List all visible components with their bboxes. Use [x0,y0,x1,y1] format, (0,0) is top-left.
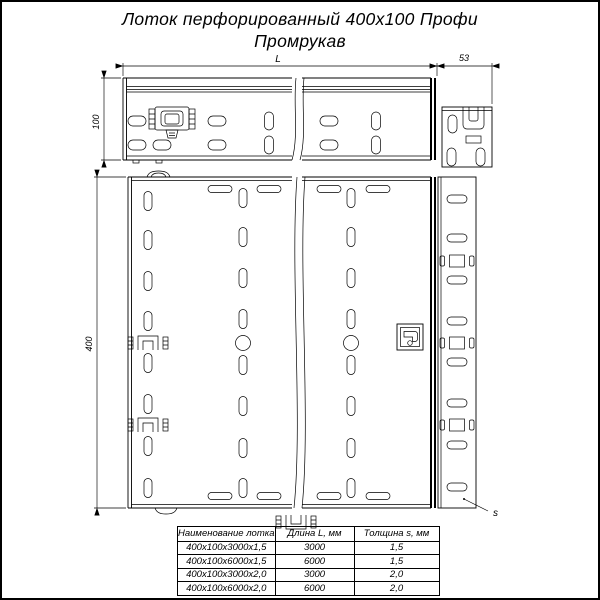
latch-detail [149,107,195,138]
spec-cell-length: 3000 [275,541,354,555]
spec-table-row: 400x100x6000x1,5 6000 1,5 [178,555,440,569]
dimension-L: L [123,54,437,76]
spec-cell-thickness: 1,5 [354,555,439,569]
connector-strip-plan [438,177,476,508]
spec-cell-thickness: 1,5 [354,541,439,555]
spec-table: Наименование лотка Длина L, мм Толщина s… [177,526,440,596]
spec-cell-name: 400x100x6000x1,5 [178,555,276,569]
top-tab [147,171,170,177]
spec-cell-name: 400x100x3000x1,5 [178,541,276,555]
dimension-100: 100 [91,78,121,160]
dimension-400: 400 [84,177,126,508]
spec-cell-length: 3000 [275,568,354,582]
spec-table-row: 400x100x6000x2,0 6000 2,0 [178,582,440,596]
spec-header-name: Наименование лотка [178,527,276,542]
technical-drawing: L 53 100 400 s [0,0,600,600]
spec-table-header-row: Наименование лотка Длина L, мм Толщина s… [178,527,440,542]
break-lines-side [292,78,304,160]
dim-label-s: s [493,508,498,519]
spec-header-length: Длина L, мм [275,527,354,542]
spec-table-row: 400x100x3000x2,0 3000 2,0 [178,568,440,582]
dim-label-100: 100 [91,114,101,129]
spec-cell-thickness: 2,0 [354,582,439,596]
connector-side-view [442,107,492,167]
dim-label-53: 53 [459,53,469,63]
dim-label-L: L [275,54,281,65]
dimension-53: 53 [437,53,492,104]
dim-label-400: 400 [84,336,94,351]
bottom-tab [155,508,177,514]
tray-end-plate [431,78,435,160]
spec-table-row: 400x100x3000x1,5 3000 1,5 [178,541,440,555]
tray-end-plate-plan [431,177,435,508]
spec-cell-name: 400x100x3000x2,0 [178,568,276,582]
plan-view [128,171,476,529]
spec-header-thickness: Толщина s, мм [354,527,439,542]
promrukav-logo-stamp [397,324,423,350]
spec-cell-thickness: 2,0 [354,568,439,582]
break-lines-plan [294,177,305,508]
spec-cell-length: 6000 [275,555,354,569]
spec-cell-length: 6000 [275,582,354,596]
side-view [123,78,492,167]
thickness-leader: s [463,498,498,519]
spec-cell-name: 400x100x6000x2,0 [178,582,276,596]
